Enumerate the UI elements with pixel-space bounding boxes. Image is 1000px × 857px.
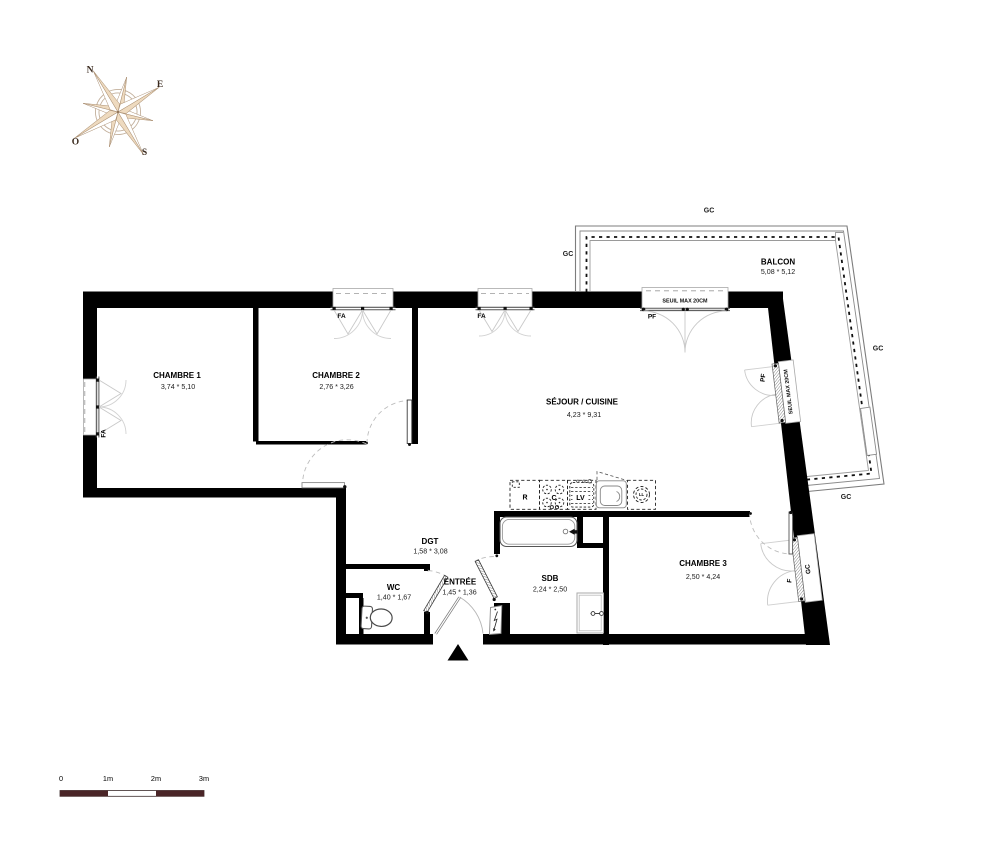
svg-text:SÉJOUR / CUISINE: SÉJOUR / CUISINE xyxy=(546,398,619,407)
svg-text:FA: FA xyxy=(477,313,486,320)
svg-text:GC: GC xyxy=(841,494,852,501)
svg-text:N: N xyxy=(87,66,94,76)
svg-text:C: C xyxy=(551,495,556,502)
svg-text:2,76 * 3,26: 2,76 * 3,26 xyxy=(319,383,353,391)
svg-text:SDB: SDB xyxy=(542,574,559,583)
svg-text:PF: PF xyxy=(648,314,656,321)
svg-text:S: S xyxy=(142,148,147,158)
svg-text:WC: WC xyxy=(387,583,401,592)
svg-text:1,58 * 3,08: 1,58 * 3,08 xyxy=(413,548,447,556)
svg-text:4,23 * 9,31: 4,23 * 9,31 xyxy=(567,411,601,419)
svg-text:2,24 * 2,50: 2,24 * 2,50 xyxy=(533,586,567,594)
svg-text:1,45 * 1,36: 1,45 * 1,36 xyxy=(442,589,476,597)
svg-text:3,74 * 5,10: 3,74 * 5,10 xyxy=(161,383,195,391)
svg-text:2m: 2m xyxy=(151,774,161,783)
svg-text:R: R xyxy=(522,495,527,502)
svg-text:0: 0 xyxy=(59,774,63,783)
svg-text:FA: FA xyxy=(337,313,346,320)
svg-text:LV: LV xyxy=(576,495,585,502)
svg-text:1m: 1m xyxy=(103,774,113,783)
svg-text:2,50 * 4,24: 2,50 * 4,24 xyxy=(686,573,720,581)
svg-text:BALCON: BALCON xyxy=(761,258,795,267)
svg-text:FA: FA xyxy=(101,429,108,438)
svg-text:1,40 * 1,67: 1,40 * 1,67 xyxy=(377,594,411,602)
svg-text:GC: GC xyxy=(873,346,884,353)
svg-text:E: E xyxy=(157,80,163,90)
svg-text:5,08 * 5,12: 5,08 * 5,12 xyxy=(761,268,795,276)
svg-text:ENTRÉE: ENTRÉE xyxy=(444,578,477,587)
svg-text:3m: 3m xyxy=(199,774,209,783)
svg-text:PF: PF xyxy=(760,373,768,382)
svg-text:SEUIL MAX 20CM: SEUIL MAX 20CM xyxy=(662,298,708,304)
svg-text:GC: GC xyxy=(804,564,812,575)
svg-text:LL: LL xyxy=(639,492,645,497)
svg-text:DGT: DGT xyxy=(422,537,439,546)
svg-text:GC: GC xyxy=(704,208,715,215)
svg-text:O: O xyxy=(72,138,79,148)
svg-text:GC: GC xyxy=(563,251,574,258)
svg-text:CHAMBRE 2: CHAMBRE 2 xyxy=(312,371,360,380)
svg-text:CHAMBRE 3: CHAMBRE 3 xyxy=(679,559,727,568)
svg-text:CHAMBRE 1: CHAMBRE 1 xyxy=(153,371,201,380)
